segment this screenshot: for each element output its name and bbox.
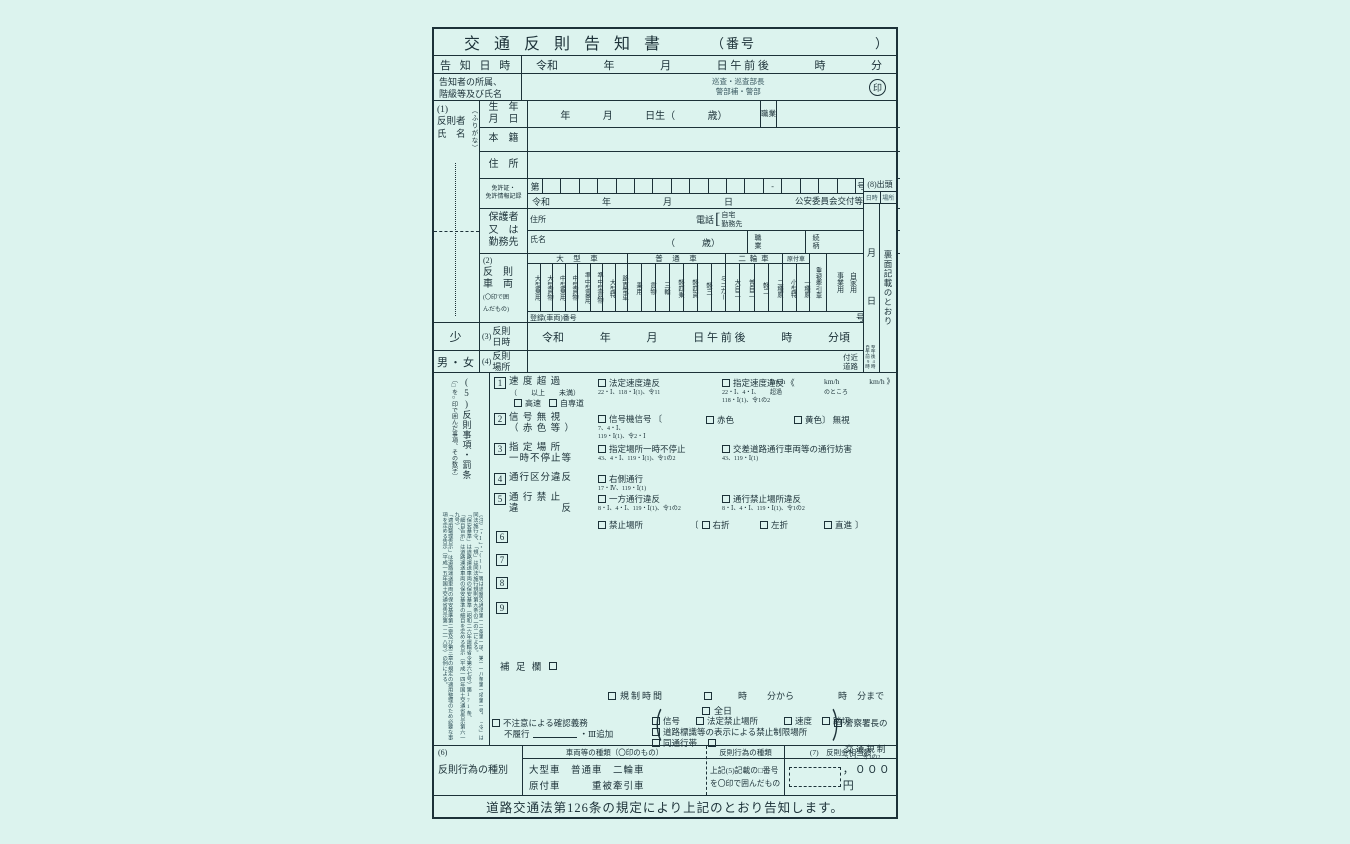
- violation-items-header-column: 〔□を○印で囲んだ事項、その数字〕 (5)反則事項・罰条 「適用整理告示」は道路…: [434, 373, 490, 745]
- violation-place-label: (4) 反則場所: [480, 351, 528, 372]
- guardian-name-label: 氏名: [528, 231, 546, 253]
- address-label: 住 所: [480, 152, 528, 178]
- vehicle-type-table: 大 型 車 大型乗用 大型貨物 中型乗用 中型貨物 準中型乗用 準中型貨物 大型…: [528, 254, 867, 311]
- fine-amount-suffix: ，０００円: [843, 761, 896, 793]
- guardian-job-label: 職 業: [748, 231, 768, 253]
- checkbox-right-turn[interactable]: [702, 521, 710, 529]
- address-field[interactable]: [528, 152, 900, 178]
- guardian-label: 保護者 又 は 勤務先: [480, 209, 528, 253]
- checkbox-supplement[interactable]: [549, 662, 557, 670]
- circle-instruction-note: 〔□を○印で囲んだ事項、その数字〕: [450, 377, 459, 509]
- registration-label: 登録(車両)番号: [530, 313, 577, 323]
- license-digit-cell[interactable]: [800, 179, 818, 193]
- item-number-box[interactable]: 2: [494, 413, 506, 425]
- vehicle-group-large: 大 型 車 大型乗用 大型貨物 中型乗用 中型貨物 準中型乗用 準中型貨物 大型…: [528, 254, 628, 311]
- guardian-job-cell: 職 業: [747, 231, 805, 253]
- license-row: 免許証・ 免許情報記録 第: [480, 179, 900, 209]
- speed-limit-field[interactable]: km/h のところ: [824, 377, 848, 397]
- vehicle-type-option[interactable]: 大型貨物: [541, 264, 554, 311]
- vehicle-type-option[interactable]: 軽四乗: [670, 264, 684, 311]
- day-token: 日: [724, 195, 733, 208]
- vehicle-group-moped: 原付車 小型特 一種原: [783, 254, 810, 311]
- checkbox-speed[interactable]: [784, 717, 792, 725]
- vehicle-type-option[interactable]: 準中型貨物: [591, 264, 604, 311]
- checkbox-statutory-speed[interactable]: [598, 379, 606, 387]
- item-number-box[interactable]: 7: [496, 554, 508, 566]
- furigana-label: （ふりがな）: [468, 107, 478, 152]
- domicile-label: 本 籍: [480, 128, 528, 151]
- vehicle-type-option[interactable]: 軽三: [698, 264, 712, 311]
- vehicle-kind-cell: 車両等の種類（〇印のもの） 大型車 普通車 二輪車 原付車 重被牽引車: [522, 746, 706, 795]
- checkbox-right-side-driving[interactable]: [598, 475, 606, 483]
- notice-datetime-field[interactable]: 令和 年 月 日 午 前 後 時 分: [522, 56, 896, 73]
- from-time: 自午前9時: [865, 345, 870, 368]
- item-number-box[interactable]: 9: [496, 602, 508, 614]
- category-label: (6) 反則行為の種別: [434, 746, 522, 795]
- guardian-fields: 住所 電話 [ 自宅 勤務先 氏名 （ 歳）: [528, 209, 900, 253]
- occupation-label: 職業: [760, 101, 777, 127]
- vehicle-type-option[interactable]: 軽四貨: [684, 264, 698, 311]
- license-digit-cell[interactable]: [652, 179, 670, 193]
- notice-datetime-label: 告 知 日 時: [434, 56, 522, 73]
- sex-indicator: 男・女: [434, 351, 480, 372]
- violation-kind-header: 反則行為の種類: [707, 746, 784, 759]
- occupation-cell: 職業: [760, 101, 900, 127]
- license-dash-cell: -: [763, 179, 781, 193]
- vehicle-type-option[interactable]: 三輪: [656, 264, 670, 311]
- vehicle-type-heavy-trailer[interactable]: 重被牽引車: [810, 254, 827, 311]
- minor-indicator: 少: [434, 323, 480, 350]
- guardian-row: 保護者 又 は 勤務先 住所 電話 [ 自宅 勤務先: [480, 209, 900, 254]
- month-token: 月: [660, 57, 671, 73]
- domicile-field[interactable]: [528, 128, 900, 151]
- license-digit-cell[interactable]: [671, 179, 689, 193]
- registration-number-row[interactable]: 登録(車両)番号 号: [528, 311, 867, 323]
- domicile-row: 本 籍: [480, 128, 900, 152]
- vehicle-use-cell[interactable]: 事業用 自家用: [827, 254, 867, 311]
- furigana-guide-line: [455, 163, 456, 316]
- legal-basis-statement: 道路交通法第126条の規定により上記のとおり告知します。: [434, 796, 896, 817]
- offender-block: (1) 反則者 氏 名 （ふりがな） 生 年 月 日 年 月: [434, 101, 896, 323]
- checkbox-blank[interactable]: [708, 739, 716, 747]
- vehicle-type-option[interactable]: 小型特: [783, 264, 797, 311]
- guardian-address-line[interactable]: 住所 電話 [ 自宅 勤務先: [528, 209, 900, 231]
- violation-datetime-row: 少 (3) 反則日時 令和 年 月 日 午 前 後 時 分頃: [434, 323, 896, 351]
- appearance-datetime-header: 日時: [864, 192, 881, 203]
- license-digit-cell[interactable]: [781, 179, 799, 193]
- checkbox-traffic-light[interactable]: [598, 415, 606, 423]
- phone-label: 電話: [696, 213, 714, 226]
- checkbox-yellow-light[interactable]: [794, 416, 802, 424]
- vehicle-group-motorcycle: 二 輪 車 大自二 普自二 軽二 二種原: [726, 254, 783, 311]
- birthdate-row: 生 年 月 日 年 月 日生（ 歳） 職業: [480, 101, 900, 128]
- checkbox-left-turn[interactable]: [760, 521, 768, 529]
- year-token: 年: [604, 57, 615, 73]
- license-label: 免許証・ 免許情報記録: [480, 179, 528, 208]
- license-digit-cell[interactable]: [542, 179, 560, 193]
- use-private: 自家用: [849, 272, 859, 293]
- item-number-box[interactable]: 1: [494, 377, 506, 389]
- vehicle-type-option[interactable]: 乗用: [628, 264, 642, 311]
- license-digit-cell[interactable]: [616, 179, 634, 193]
- item-number-box[interactable]: 4: [494, 473, 506, 485]
- checkbox-expressway[interactable]: [514, 399, 522, 407]
- vehicle-type-option[interactable]: 大型特: [603, 264, 616, 311]
- license-number-block: 第 -: [528, 179, 900, 208]
- notifier-field[interactable]: 巡査・巡査部長 警部補・警部 印: [522, 74, 896, 100]
- checkbox-red-light[interactable]: [706, 416, 714, 424]
- license-digit-cell[interactable]: [744, 179, 762, 193]
- occupation-field[interactable]: [777, 101, 900, 127]
- notifier-label: 告知者の所属、 階級等及び氏名: [434, 74, 522, 100]
- violation-place-row: 男・女 (4) 反則場所 付近 道路: [434, 351, 896, 373]
- month-token: 月: [663, 195, 672, 208]
- nearby-road-label: 付近 道路: [843, 353, 858, 371]
- police-chief-regulation: 警察署長の 交 通 規 制 5・Ⅰ、令3の2: [834, 717, 888, 762]
- era-token: 令和: [532, 195, 550, 208]
- section5-title: (5)反則事項・罰条: [461, 377, 474, 509]
- checkbox-same-lane[interactable]: [652, 739, 660, 747]
- guardian-relation-label: 続 柄: [806, 231, 826, 253]
- checkbox-time-range[interactable]: [704, 692, 712, 700]
- vehicle-table: 大 型 車 大型乗用 大型貨物 中型乗用 中型貨物 準中型乗用 準中型貨物 大型…: [528, 254, 900, 323]
- violation-vehicle-block: (2) 反 則 車 両 (〇印で囲 んだもの) 大 型 車 大型乗用: [480, 254, 900, 323]
- offender-fields: 生 年 月 日 年 月 日生（ 歳） 職業 本 籍: [480, 101, 900, 322]
- license-number-line[interactable]: 第 -: [528, 179, 867, 193]
- item-stop-sign: 3 指 定 場 所一時不停止等 指定場所一時不停止 43、4・Ⅰ、119・Ⅰ(1…: [494, 443, 894, 469]
- notifier-row: 告知者の所属、 階級等及び氏名 巡査・巡査部長 警部補・警部 印: [434, 74, 896, 101]
- minute-token: 分: [871, 57, 882, 73]
- to-time: 至午後4時: [871, 345, 876, 368]
- appearance-section: (8)出頭 日時 場所 月 日 自午前9時 至午後4時 裏面記載のとおり: [863, 178, 896, 373]
- day-token: 日: [864, 294, 879, 307]
- license-digit-cell[interactable]: [560, 179, 578, 193]
- day-ampm-token: 日 午 前 後: [717, 57, 769, 73]
- item-signal-ignored: 2 信 号 無 視（ 赤 色 等 ） 信号機信号 〔 7、4・Ⅰ、 119・Ⅰ(…: [494, 413, 894, 439]
- appearance-place-field: 裏面記載のとおり: [880, 204, 896, 372]
- license-digit-cell[interactable]: [579, 179, 597, 193]
- vehicle-kind-options[interactable]: 大型車 普通車 二輪車 原付車 重被牽引車: [523, 759, 706, 795]
- item-number-box[interactable]: 6: [496, 531, 508, 543]
- violation-kind-text: 上記(5)記載の□番号 を〇印で囲んだもの: [707, 759, 784, 795]
- appearance-header: (8)出頭: [864, 178, 896, 192]
- license-issue-line[interactable]: 令和 年 月 日 公安委員会交付等: [528, 193, 867, 208]
- item-number-box[interactable]: 8: [496, 577, 508, 589]
- license-digit-cell[interactable]: [597, 179, 615, 193]
- appearance-datetime-field[interactable]: 月 日 自午前9時 至午後4時: [864, 204, 880, 372]
- vehicle-type-option[interactable]: 大型乗用: [528, 264, 541, 311]
- vehicle-label: (2) 反 則 車 両 (〇印で囲 んだもの): [480, 254, 528, 323]
- offender-name-column: (1) 反則者 氏 名 （ふりがな）: [434, 101, 480, 322]
- violation-place-field[interactable]: 付近 道路: [528, 351, 896, 372]
- supplement-field[interactable]: 補 足 欄: [500, 659, 557, 673]
- guardian-age: （ 歳）: [666, 236, 720, 249]
- vehicle-type-option[interactable]: 路面電車: [616, 264, 628, 311]
- vehicle-type-option[interactable]: 普自二: [740, 264, 754, 311]
- notice-datetime-row: 告 知 日 時 令和 年 月 日 午 前 後 時 分: [434, 56, 896, 74]
- violation-kind-cell: 反則行為の種類 上記(5)記載の□番号 を〇印で囲んだもの: [706, 746, 784, 795]
- appearance-place-header: 場所: [881, 192, 897, 203]
- vehicle-type-option[interactable]: 中型貨物: [566, 264, 579, 311]
- officer-ranks: 巡査・巡査部長 警部補・警部: [712, 77, 765, 98]
- address-row: 住 所: [480, 152, 900, 179]
- hour-token: 時: [814, 57, 825, 73]
- legal-footnote: 「適用整理告示」は道路運送車両の保安基準第二章及び第三章の規定の適用整理のため必…: [440, 509, 484, 745]
- checkbox-stop-sign-violation[interactable]: [598, 445, 606, 453]
- ticket-number-close: ）: [875, 33, 888, 52]
- item-number-box[interactable]: 3: [494, 443, 506, 455]
- birthdate-label: 生 年 月 日: [480, 101, 528, 127]
- checkbox-designated-speed[interactable]: [722, 379, 730, 387]
- vehicle-type-option[interactable]: 中型乗用: [553, 264, 566, 311]
- speed-actual-field[interactable]: km/h 》: [869, 377, 894, 387]
- see-reverse-note: 裏面記載のとおり: [882, 250, 894, 326]
- guardian-name-line[interactable]: 氏名 （ 歳） 職 業 続 柄: [528, 231, 900, 253]
- license-digit-cell[interactable]: [818, 179, 836, 193]
- checkbox-cross-traffic-obstruction[interactable]: [722, 445, 730, 453]
- ticket-number-label: （番号: [711, 33, 756, 52]
- traffic-ticket-page: 交 通 反 則 告 知 書 （番号 ） 告 知 日 時 令和 年 月 日 午 前…: [0, 0, 1350, 844]
- violation-items-section: 〔□を○印で囲んだ事項、その数字〕 (5)反則事項・罰条 「適用整理告示」は道路…: [434, 373, 896, 746]
- license-digit-cell[interactable]: [689, 179, 707, 193]
- vehicle-type-option[interactable]: 貨物: [642, 264, 656, 311]
- checkbox-crossing[interactable]: [822, 717, 830, 725]
- guardian-relation-cell: 続 柄: [805, 231, 867, 253]
- license-digit-cell[interactable]: [726, 179, 744, 193]
- issuer-label: 公安委員会交付等: [795, 195, 863, 207]
- vehicle-type-option[interactable]: 二種原: [769, 264, 782, 311]
- form-title-row: 交 通 反 則 告 知 書 （番号 ）: [434, 29, 896, 56]
- checkbox-police-chief[interactable]: [834, 719, 842, 727]
- vehicle-type-option[interactable]: 一種原: [797, 264, 810, 311]
- license-digit-cell[interactable]: [708, 179, 726, 193]
- phone-bracket: [: [715, 211, 720, 229]
- dashed-divider: [434, 231, 479, 232]
- guardian-address-label: 住所: [530, 214, 546, 225]
- checkbox-statutory-prohibited-place[interactable]: [696, 717, 704, 725]
- violation-datetime-field[interactable]: 令和 年 月 日 午 前 後 時 分頃: [528, 323, 896, 350]
- item-speeding: 1 速 度 超 過 （ 以上 未満） 高速 自専道 法定速度違反 22・Ⅰ、11…: [494, 377, 894, 409]
- checkbox-motor-road[interactable]: [549, 399, 557, 407]
- vehicle-type-option[interactable]: 軽二: [755, 264, 769, 311]
- item-lane-violation: 4 通行区分違反 右側通行 17・Ⅳ、119・Ⅰ(1): [494, 473, 894, 491]
- phone-options: 自宅 勤務先: [721, 211, 742, 229]
- license-digit-cell[interactable]: [634, 179, 652, 193]
- checkbox-road-sign-place[interactable]: [652, 728, 660, 736]
- item-no-entry: 5 通 行 禁 止違 反 一方通行違反 8・Ⅰ、4・Ⅰ、119・Ⅰ(1)、令1の…: [494, 493, 894, 537]
- form-title: 交 通 反 則 告 知 書: [464, 30, 665, 54]
- traffic-violation-notice-form: 交 通 反 則 告 知 書 （番号 ） 告 知 日 時 令和 年 月 日 午 前…: [432, 27, 898, 819]
- year-token: 年: [602, 195, 611, 208]
- checkbox-no-entry-place[interactable]: [722, 495, 730, 503]
- speed-over-field[interactable]: km/h 超過: [770, 377, 785, 397]
- blank-underline[interactable]: [533, 730, 577, 738]
- fine-amount-box[interactable]: [789, 767, 841, 787]
- seal-stamp-icon: 印: [869, 79, 886, 96]
- violation-datetime-label: (3) 反則日時: [480, 323, 528, 350]
- use-business: 事業用: [836, 272, 846, 293]
- checkbox-prohibited-place[interactable]: [598, 521, 606, 529]
- vehicle-type-option[interactable]: ミニカー: [712, 264, 725, 311]
- checkbox-straight[interactable]: [824, 521, 832, 529]
- item-number-box[interactable]: 5: [494, 493, 506, 505]
- violation-category-row: (6) 反則行為の種別 車両等の種類（〇印のもの） 大型車 普通車 二輪車 原付…: [434, 746, 896, 796]
- month-token: 月: [864, 246, 879, 259]
- checkbox-careless-confirmation[interactable]: [492, 719, 500, 727]
- vehicle-group-ordinary: 普 通 車 乗用 貨物 三輪 軽四乗 軽四貨 軽三 ミニカー: [628, 254, 726, 311]
- checkbox-signal[interactable]: [652, 717, 660, 725]
- vehicle-type-option[interactable]: 準中型乗用: [578, 264, 591, 311]
- checkbox-one-way-violation[interactable]: [598, 495, 606, 503]
- vehicle-type-option[interactable]: 大自二: [726, 264, 740, 311]
- license-number-prefix: 第: [528, 179, 542, 193]
- license-digit-cell[interactable]: [837, 179, 855, 193]
- checkbox-regulation-time[interactable]: [608, 692, 616, 700]
- appearance-subheaders: 日時 場所: [864, 192, 896, 204]
- violation-items-list: 1 速 度 超 過 （ 以上 未満） 高速 自専道 法定速度違反 22・Ⅰ、11…: [490, 373, 896, 745]
- birthdate-field[interactable]: 年 月 日生（ 歳）: [528, 101, 760, 127]
- checkbox-all-day[interactable]: [702, 707, 710, 715]
- era-token: 令和: [536, 57, 558, 73]
